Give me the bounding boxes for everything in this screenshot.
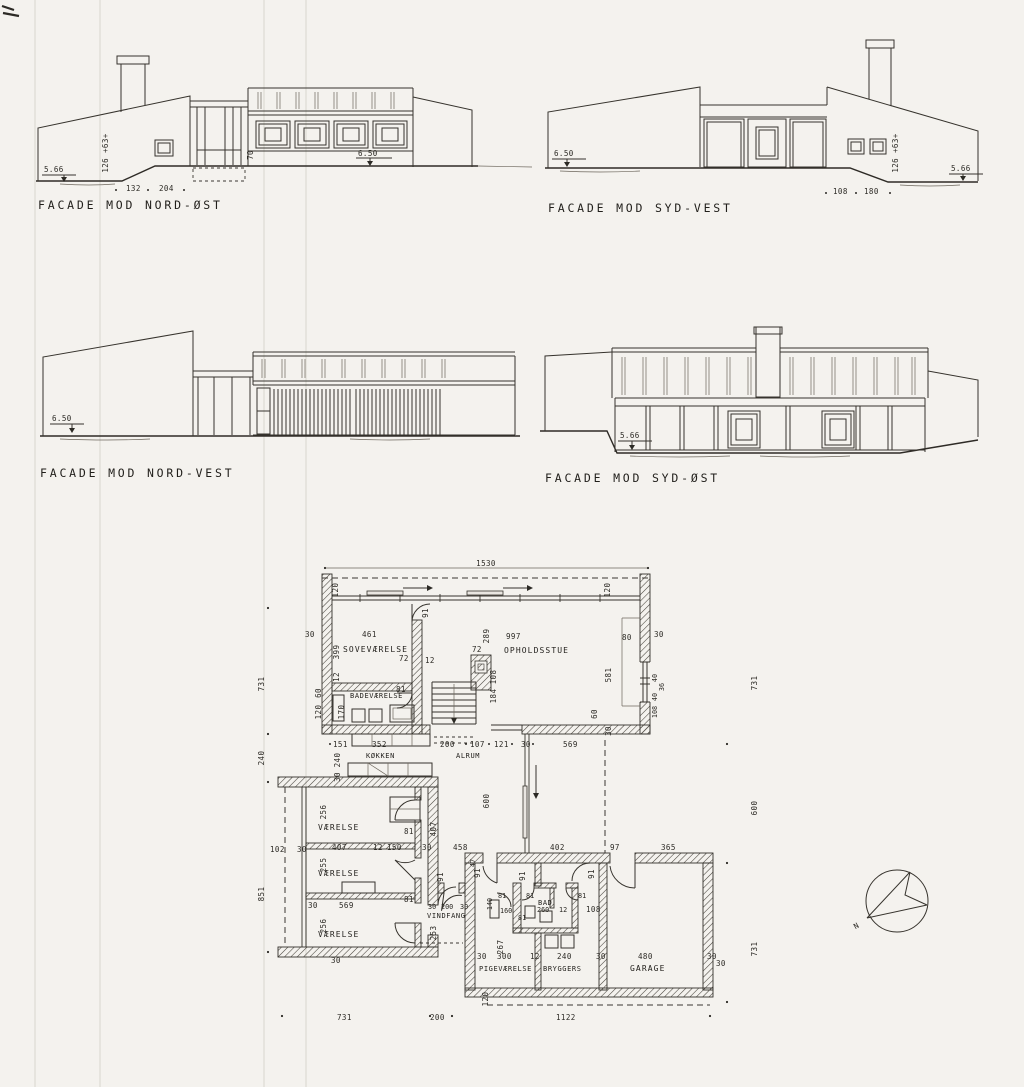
facade-nord-ost: 5.66 126 +63+ 70 6.50 132 204 FACADE MOD… (36, 56, 532, 212)
dim: 399 (332, 645, 341, 660)
dim: 200 (430, 1013, 445, 1022)
facade-label: FACADE MOD SYD-ØST (545, 471, 720, 485)
window-band (256, 121, 407, 148)
window-height-dim: 70 (246, 150, 255, 160)
dim: 91 (473, 868, 482, 878)
dim: 60 (590, 709, 599, 719)
dim: 81 (578, 892, 586, 900)
overall-width-dim: 1530 (476, 559, 496, 568)
dim: 91 (421, 608, 430, 618)
plan-stairs (432, 682, 476, 724)
dim: 200 (441, 903, 453, 911)
dim: 120 (314, 705, 323, 720)
room-label-bryggers: BRYGGERS (543, 965, 582, 973)
base-dim: 180 (864, 187, 879, 196)
base-dim: 204 (159, 184, 174, 193)
dim: 97 (610, 843, 620, 852)
dim: 581 (604, 668, 613, 683)
margin-dim: 600 (750, 801, 759, 816)
room-label-vaerelse: VÆRELSE (318, 930, 359, 939)
facade-syd-ost: 5.66 FACADE MOD SYD-ØST (540, 327, 978, 485)
room-label-koekken: KØKKEN (366, 752, 395, 760)
dim: 200 (440, 740, 455, 749)
dim: 289 (482, 629, 491, 644)
dim: 600 (482, 794, 491, 809)
dim: 458 (453, 843, 468, 852)
dim: 81 (396, 685, 406, 694)
dim: 12 (530, 952, 540, 961)
wall-height-dim: 126 +63+ (101, 133, 110, 172)
dim: 102 (270, 845, 285, 854)
dim: 151 (333, 740, 348, 749)
drawing-canvas: 5.66 126 +63+ 70 6.50 132 204 FACADE MOD… (0, 0, 1024, 1087)
dim: 461 (362, 630, 377, 639)
architectural-drawing-sheet: 5.66 126 +63+ 70 6.50 132 204 FACADE MOD… (0, 0, 1024, 1087)
dim: 30 (331, 956, 341, 965)
glass-panels (704, 119, 826, 167)
margin-dim: 731 (750, 942, 759, 957)
dim: 91 (587, 869, 596, 879)
dim: 30 (521, 740, 531, 749)
dim: 108 (586, 905, 601, 914)
facade-syd-ost-drawing (540, 327, 978, 457)
dim: 184 (489, 689, 498, 704)
margin-dim: 731 (257, 677, 266, 692)
dim: 160 (500, 907, 512, 915)
clerestory-mullions (258, 92, 394, 109)
facade-syd-vest-drawing (545, 40, 983, 194)
windows (728, 411, 854, 448)
dim: 30 (604, 726, 613, 736)
dim: 170 (337, 705, 346, 720)
dim: 365 (661, 843, 676, 852)
dim: 352 (372, 740, 387, 749)
room-label-pigevaerelse: PIGEVÆRELSE (479, 965, 532, 973)
dim: 256 (319, 805, 328, 820)
facade-syd-vest: 6.50 126 +63+ 5.66 108 180 FACADE MOD SY… (545, 40, 983, 215)
facade-nord-vest: 6.50 FACADE MOD NORD-VEST (40, 331, 520, 480)
dim: 81 (518, 914, 526, 922)
dim: 120 (603, 583, 612, 598)
timber-slats (274, 389, 440, 435)
dim: 36 (658, 683, 666, 691)
dim: 240 (557, 952, 572, 961)
margin-dim: 851 (257, 887, 266, 902)
dim: 240 (333, 753, 342, 768)
level-dim: 6.50 (554, 149, 574, 158)
dim: 81 (404, 895, 414, 904)
level-dim: 6.50 (52, 414, 72, 423)
dim: 81 (404, 827, 414, 836)
dim: 30 (460, 903, 468, 911)
dim: 140 (486, 898, 494, 910)
dim: 121 (494, 740, 509, 749)
dim: 30 (596, 952, 606, 961)
dim: 731 (337, 1013, 352, 1022)
dim: 81 (498, 892, 506, 900)
base-dim: 132 (126, 184, 141, 193)
room-label-vindfang: VINDFANG (427, 912, 466, 920)
dim: 997 (506, 632, 521, 641)
facade-nord-ost-drawing (36, 56, 532, 191)
dim: 569 (563, 740, 578, 749)
dim: 30 (716, 959, 726, 968)
scan-artifact (2, 6, 19, 16)
dim: 407 (332, 843, 347, 852)
level-dim: 6.50 (358, 149, 378, 158)
margin-dim: 240 (257, 751, 266, 766)
facade-label: FACADE MOD NORD-VEST (40, 466, 234, 480)
dim: 91 (436, 872, 445, 882)
dim: 40 (651, 674, 659, 682)
room-label-vaerelse: VÆRELSE (318, 869, 359, 878)
dim: 120 (481, 992, 490, 1007)
dim: 120 (331, 583, 340, 598)
dim: 12 (559, 906, 567, 914)
room-label-garage: GARAGE (630, 964, 666, 973)
clerestory-mullions (262, 359, 445, 378)
dim: 30 (422, 843, 432, 852)
room-label-opholdsstue: OPHOLDSSTUE (504, 646, 569, 655)
dim: 30 (305, 630, 315, 639)
dim: 260 (537, 906, 549, 914)
dim: 30 (654, 630, 664, 639)
room-label-vaerelse: VÆRELSE (318, 823, 359, 832)
dim: 108 (489, 670, 498, 685)
dim: 81 (526, 892, 534, 900)
dim: 253 (429, 926, 438, 941)
dim: 480 (638, 952, 653, 961)
dim: 300 (497, 952, 512, 961)
level-dim: 5.66 (951, 164, 971, 173)
level-dim: 5.66 (44, 165, 64, 174)
margin-dim: 731 (750, 676, 759, 691)
room-label-sovevaerelse: SOVEVÆRELSE (343, 645, 408, 654)
level-dim: 5.66 (620, 431, 640, 440)
dim: 12 (332, 672, 341, 682)
dim: 150 (387, 843, 402, 852)
dim: 108 (651, 706, 659, 718)
dim: 47 (469, 859, 477, 867)
dim: 569 (339, 901, 354, 910)
wall-height-dim: 126 +63+ (891, 133, 900, 172)
facade-label: FACADE MOD SYD-VEST (548, 201, 733, 215)
dim: 60 (314, 688, 323, 698)
dim: 80 (622, 633, 632, 642)
dim: 12 (425, 656, 435, 665)
facade-nord-vest-drawing (40, 331, 520, 440)
dim: 12 (373, 843, 383, 852)
dim: 72 (399, 654, 409, 663)
dim: 1122 (556, 1013, 576, 1022)
dim: 91 (518, 871, 527, 881)
mullions (646, 406, 892, 450)
floor-plan: 1530 120 120 30 30 461 399 SOVEVÆRELSE 7… (257, 559, 759, 1022)
dim: 30 (333, 772, 342, 782)
base-dim: 108 (833, 187, 848, 196)
dim: 407 (429, 822, 438, 837)
room-label-alrum: ALRUM (456, 752, 480, 760)
dim: 72 (472, 645, 482, 654)
dim: 30 (308, 901, 318, 910)
dim: 30 (428, 903, 436, 911)
facade-label: FACADE MOD NORD-ØST (38, 198, 223, 212)
dim: 402 (550, 843, 565, 852)
north-label: N (852, 921, 861, 931)
dim: 40 (651, 693, 659, 701)
dim: 30 (477, 952, 487, 961)
north-compass: N (852, 870, 928, 932)
dim: 30 (297, 845, 307, 854)
dim: 107 (470, 740, 485, 749)
